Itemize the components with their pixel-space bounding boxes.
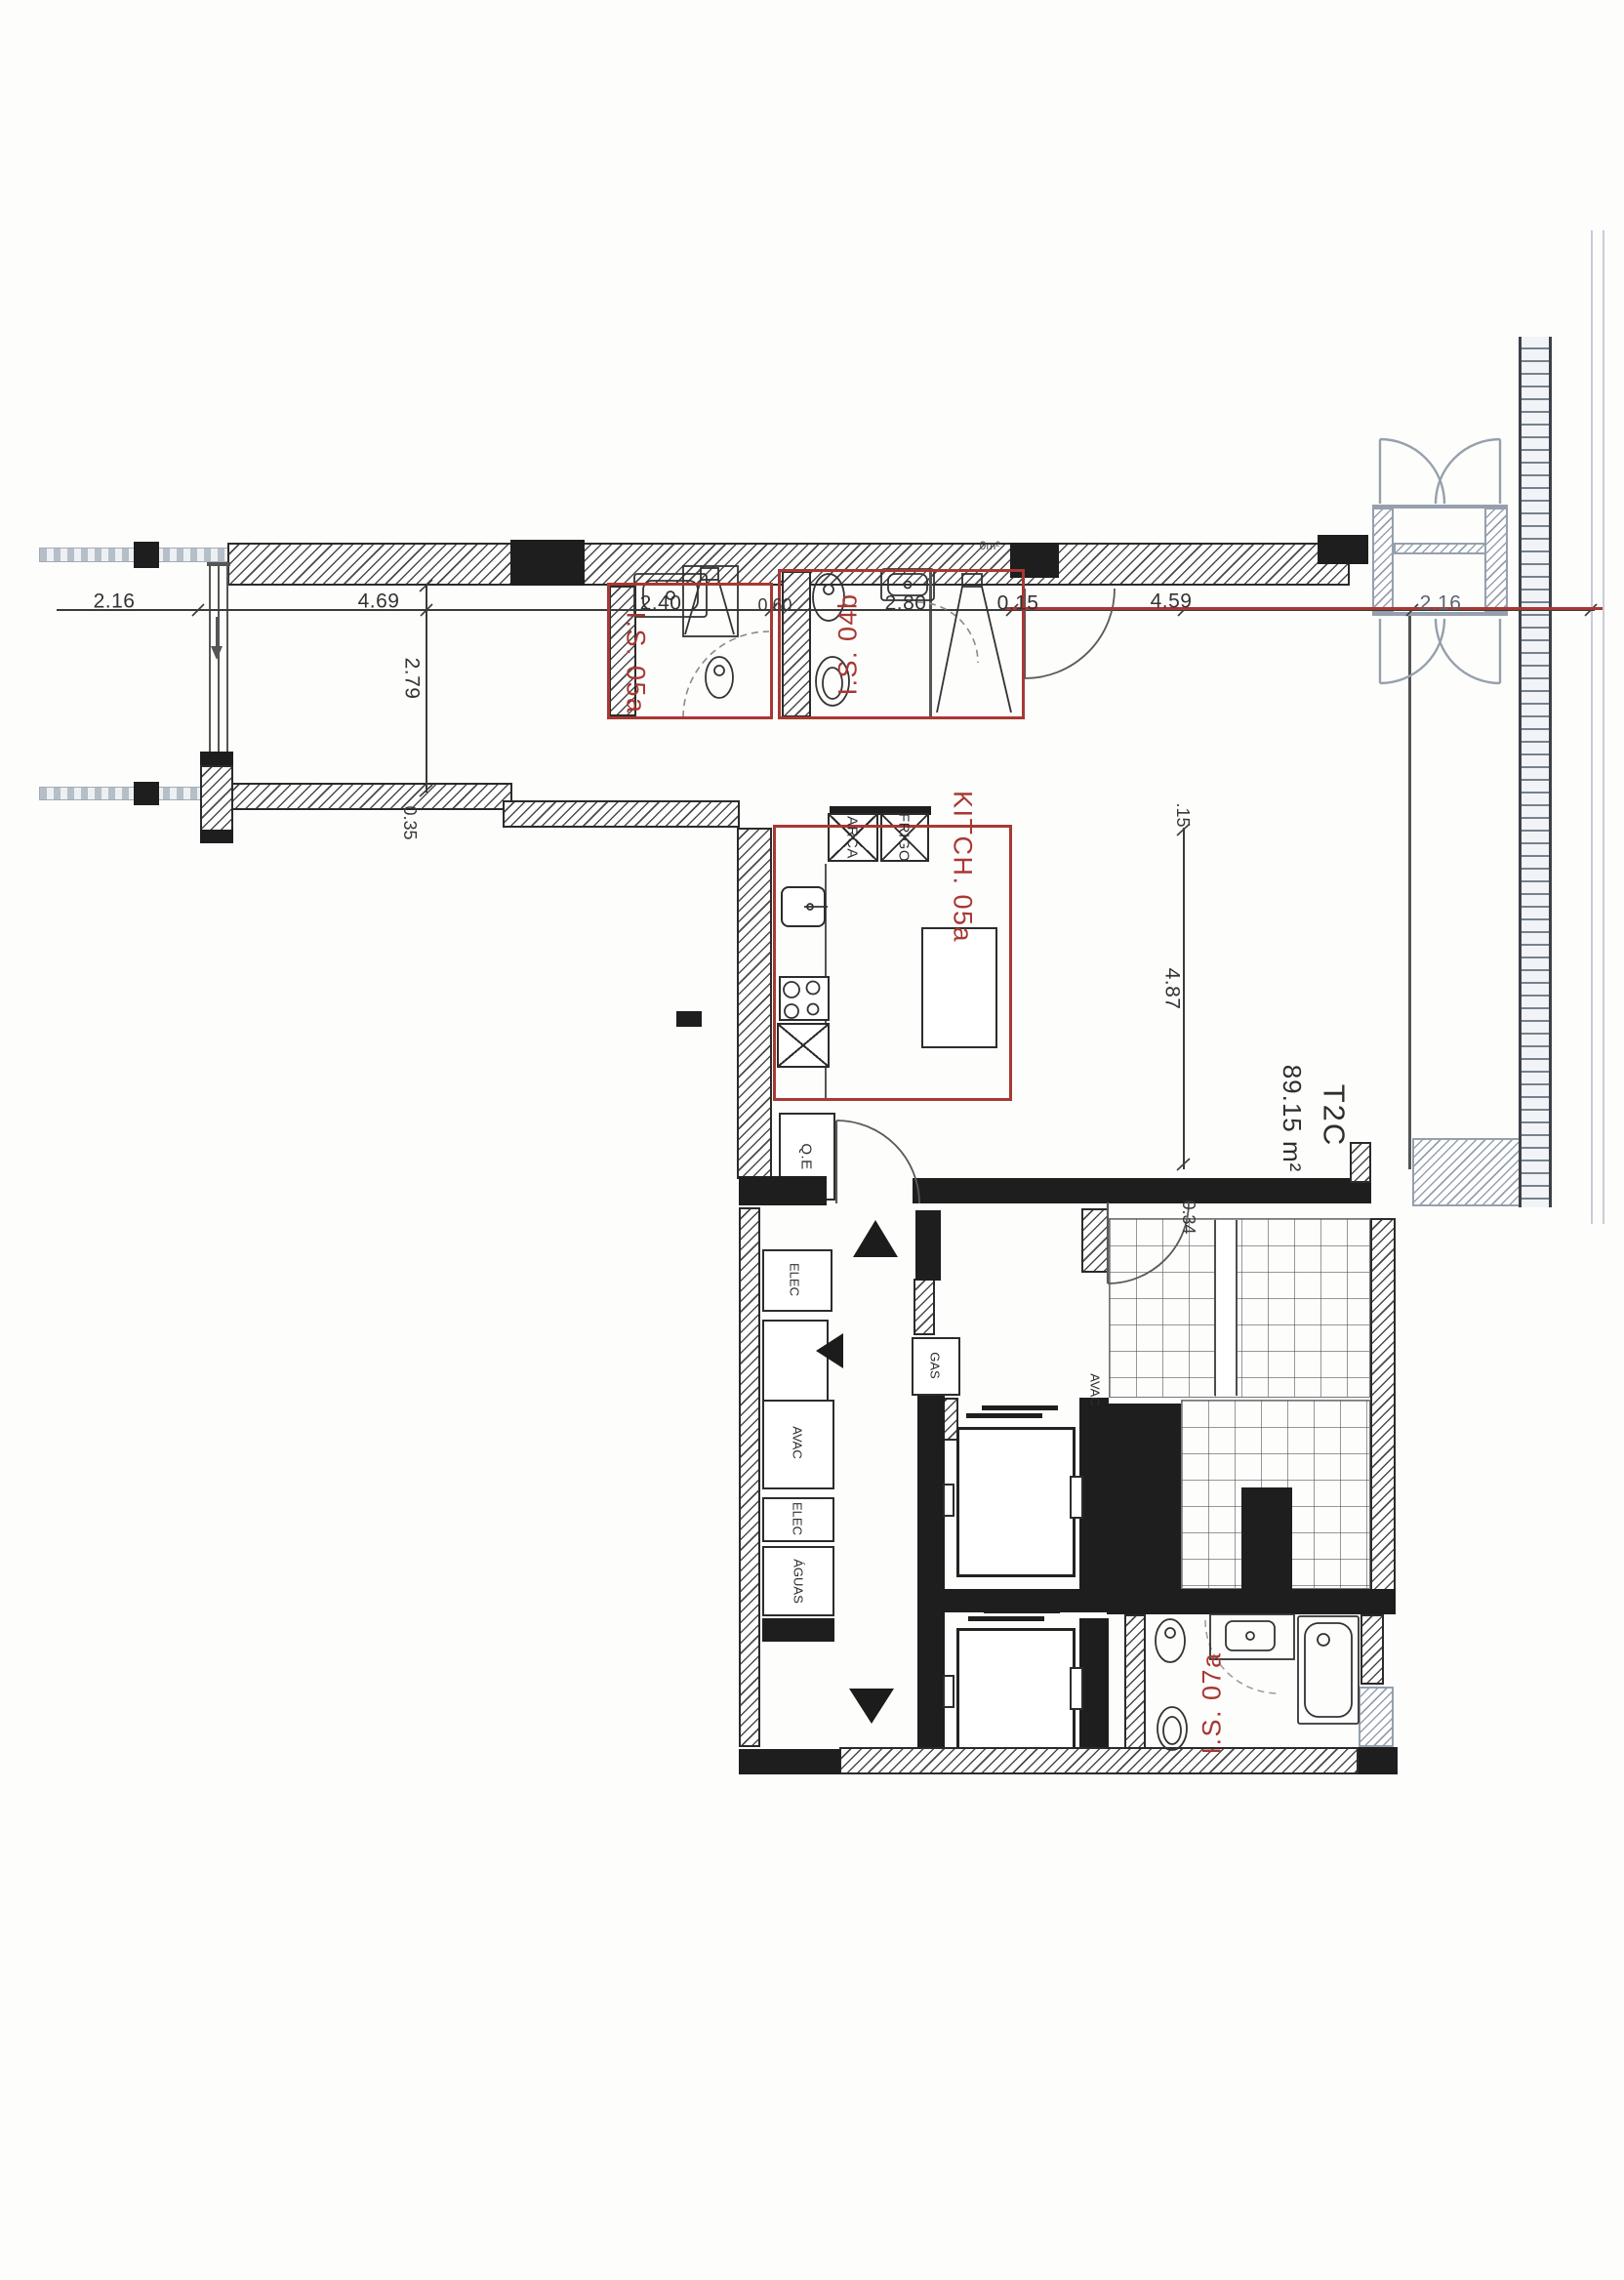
dim-wall-offset: .15 — [1174, 802, 1192, 827]
dim-living-width: 4.69 — [358, 591, 400, 612]
triangle-down-icon — [849, 1689, 894, 1724]
unit-area-label: 89.15 m² — [1279, 1065, 1305, 1173]
dim-wall-gap: 0.15 — [997, 593, 1039, 614]
dim-wall-thickness: 0.35 — [401, 805, 419, 839]
dim-entrance-width: 2.16 — [1420, 593, 1462, 614]
dim-living-height: 2.79 — [402, 658, 423, 700]
label-aguas: ÁGUAS — [792, 1559, 805, 1604]
triangle-left-icon — [816, 1333, 843, 1368]
label-gas: GAS — [929, 1352, 942, 1378]
vestibule-doors — [1380, 439, 1500, 683]
label-avac: AVAC — [792, 1426, 804, 1458]
triangle-up-icon — [853, 1220, 898, 1257]
unit-code-label: T2C — [1319, 1084, 1350, 1148]
label-electrical-panel: Q.E — [799, 1143, 814, 1169]
bidet-icon — [1156, 1619, 1185, 1662]
entry-arrow-icon — [211, 617, 223, 660]
room-label-is05a: I.S. 05a — [623, 611, 649, 713]
red-section-line — [1005, 607, 1603, 610]
room-label-is04b: I.S. 04b — [835, 592, 862, 695]
bathtub-icon — [1298, 1616, 1359, 1724]
room-label-kitchen: KITCH. 05a — [950, 791, 976, 943]
floorplan-sheet: 2.16 4.69 2.40 0.60 2.80 0.15 4.59 2.16 … — [0, 0, 1624, 2280]
dim-main-height: 4.87 — [1162, 968, 1183, 1010]
room-label-is07a: I.S. 07a — [1199, 1651, 1226, 1754]
label-avac-lobby: AVAC — [1089, 1373, 1102, 1405]
dim-vanity-05a: 2.40 — [640, 593, 682, 614]
dim-balcony-left: 2.16 — [94, 591, 136, 612]
label-fridge: FRIGO — [897, 813, 912, 862]
level-triangles — [816, 1220, 898, 1724]
door-arc-entry — [836, 1120, 919, 1203]
dim-door-gap: 0.60 — [757, 596, 792, 614]
dim-area-note: 0m² — [980, 540, 1000, 551]
dim-vanity-04b: 2.80 — [885, 593, 927, 614]
label-elec-top: ELEC — [789, 1263, 801, 1296]
plan-annotations-layer — [0, 0, 1624, 2280]
door-swings — [683, 589, 1279, 1693]
label-freezer: ARCA — [845, 816, 860, 859]
fixtures-is07a — [1156, 1614, 1359, 1750]
door-arc-stairs — [1108, 1202, 1189, 1283]
dim-stair-wall: 0.34 — [1180, 1200, 1198, 1234]
label-elec-mid: ELEC — [792, 1502, 804, 1535]
dim-main-width: 4.59 — [1151, 591, 1193, 612]
